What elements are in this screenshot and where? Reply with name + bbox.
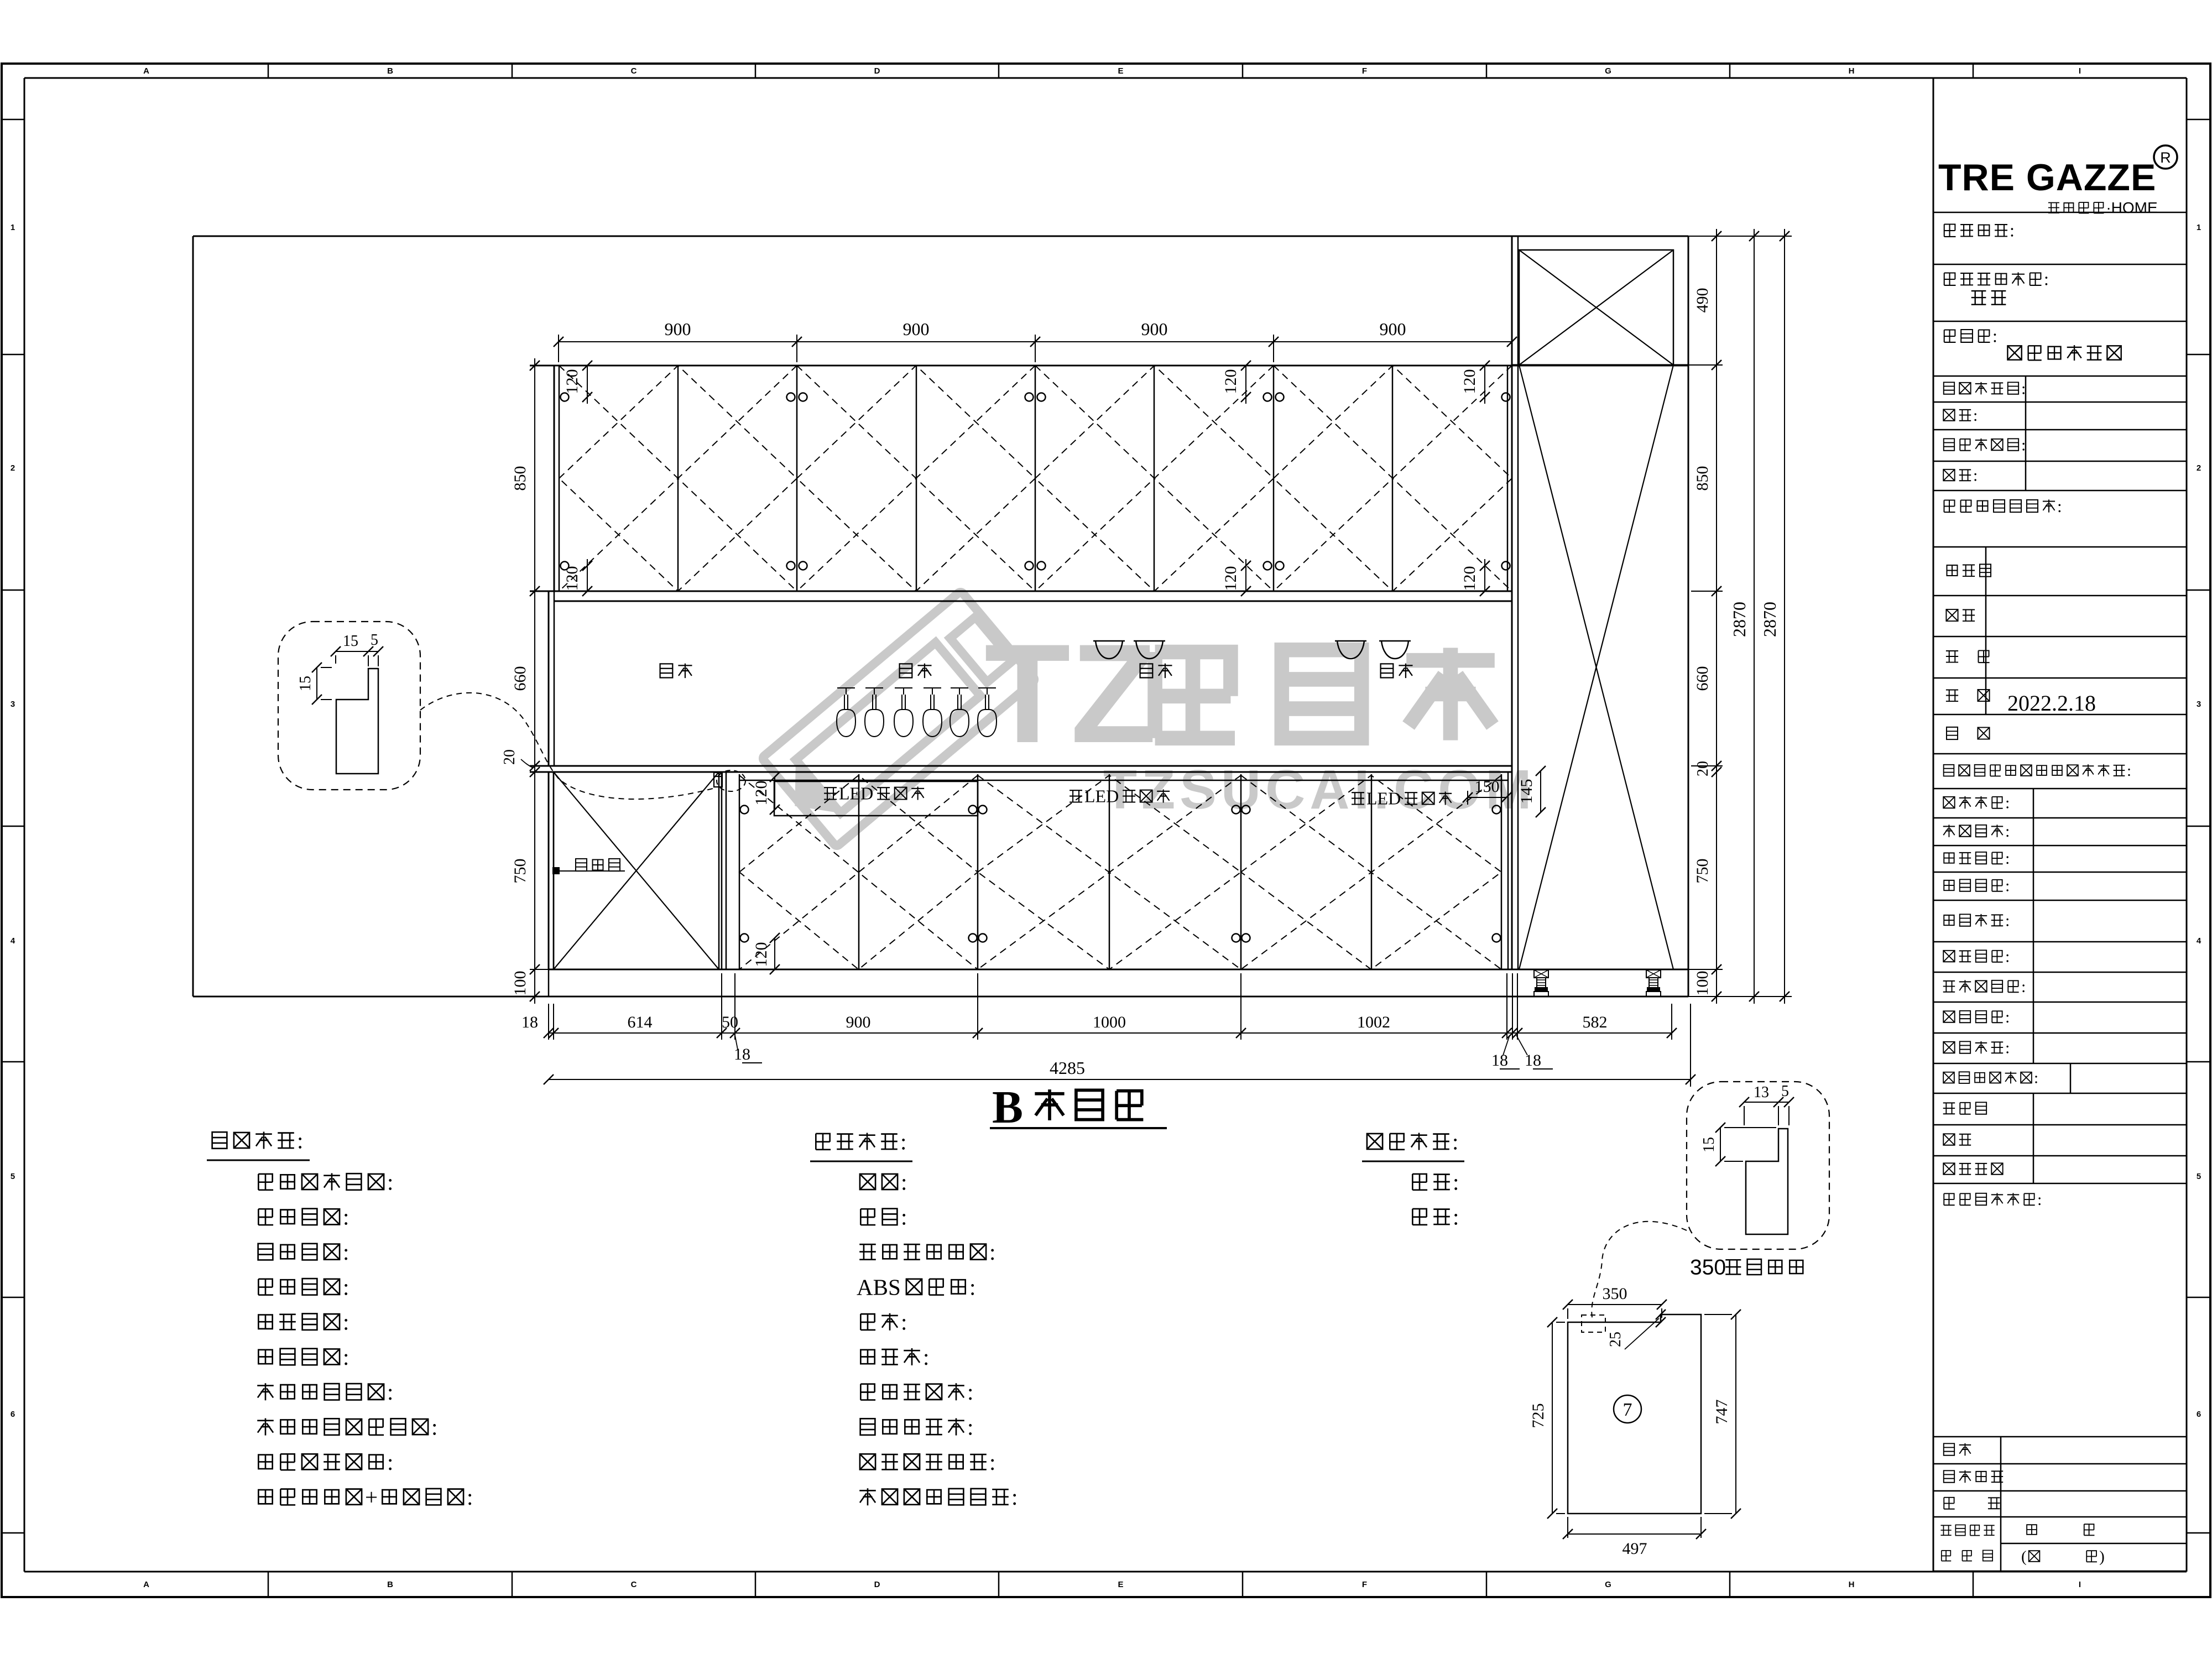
svg-text:7: 7 [1623,1400,1632,1420]
svg-text:4285: 4285 [1050,1058,1085,1078]
svg-text::: : [2005,1039,2010,1057]
svg-text:13: 13 [1754,1084,1769,1101]
svg-text:5: 5 [371,632,378,649]
svg-text:D: D [874,66,880,76]
svg-text:15: 15 [297,676,314,691]
svg-text:G: G [1605,1580,1611,1589]
svg-text:TZSUCAI.COM: TZSUCAI.COM [1103,759,1536,821]
svg-text:490: 490 [1693,288,1712,313]
svg-text:C: C [631,1580,637,1589]
svg-text::: : [343,1274,349,1300]
svg-text::: : [2005,947,2010,966]
svg-text:+: + [365,1484,378,1510]
svg-text:E: E [1118,1580,1123,1589]
svg-text:1: 1 [2197,223,2201,232]
svg-text:3: 3 [11,700,15,709]
svg-text:ABS: ABS [857,1274,901,1300]
svg-text:18: 18 [1491,1051,1508,1070]
svg-text:145: 145 [1517,779,1536,804]
svg-text:2870: 2870 [1760,602,1780,637]
svg-text::: : [2021,978,2026,996]
svg-text:900: 900 [903,319,930,339]
svg-text::: : [901,1169,907,1194]
svg-text:6: 6 [11,1410,15,1419]
svg-text:1000: 1000 [1093,1013,1126,1031]
svg-text:120: 120 [1222,566,1240,591]
svg-text::: : [1453,1169,1459,1194]
svg-text:F: F [1362,1580,1367,1589]
svg-text::: : [1011,1484,1018,1510]
svg-text:(: ( [2021,1548,2027,1566]
svg-text::: : [2127,762,2131,780]
svg-text:50: 50 [722,1013,738,1031]
svg-text::: : [989,1239,995,1265]
svg-text:I: I [2079,1580,2081,1589]
svg-text:120: 120 [563,566,581,591]
svg-text:A: A [143,66,149,76]
svg-text:25: 25 [1607,1332,1624,1347]
svg-text:15: 15 [1700,1137,1718,1152]
svg-text:5: 5 [1781,1083,1789,1100]
svg-text:C: C [631,66,637,76]
svg-text:2: 2 [11,463,15,473]
svg-text:120: 120 [1460,369,1479,394]
svg-text::: : [901,1310,907,1335]
svg-text::: : [967,1415,973,1440]
svg-text:B: B [992,1082,1023,1133]
svg-text:18: 18 [734,1045,750,1063]
svg-text:725: 725 [1529,1404,1547,1428]
svg-text:5: 5 [11,1172,15,1181]
svg-text::: : [969,1274,975,1300]
svg-text::: : [923,1344,929,1370]
svg-text:120: 120 [563,369,581,394]
svg-text:582: 582 [1583,1013,1608,1031]
svg-text:): ) [2099,1548,2105,1566]
svg-text:120: 120 [1460,566,1479,591]
svg-text:TZ: TZ [984,615,1157,773]
svg-text::: : [343,1239,349,1265]
svg-text:350: 350 [1603,1285,1627,1303]
svg-text::: : [387,1169,393,1194]
svg-text:E: E [1118,66,1123,76]
svg-text:1: 1 [11,223,15,232]
svg-text:120: 120 [752,942,770,967]
svg-text:G: G [1605,66,1611,76]
svg-text::: : [1973,406,1978,425]
svg-text:100: 100 [1693,971,1712,996]
svg-text:18: 18 [521,1013,538,1031]
svg-text::: : [343,1204,349,1230]
svg-text:747: 747 [1713,1400,1731,1425]
svg-text::: : [2044,269,2049,289]
svg-text::: : [297,1128,303,1153]
svg-text:TRE GAZZE: TRE GAZZE [1938,156,2156,199]
svg-text:·HOME: ·HOME [2106,199,2157,216]
svg-text:497: 497 [1623,1540,1647,1558]
svg-text:900: 900 [1380,319,1406,339]
svg-text::: : [2010,221,2015,241]
svg-text:D: D [874,1580,880,1589]
svg-text:750: 750 [1693,859,1712,884]
svg-text::: : [343,1310,349,1335]
svg-text:H: H [1849,66,1855,76]
svg-text:4: 4 [2197,936,2201,946]
svg-text:2: 2 [2197,463,2201,473]
svg-text:900: 900 [1141,319,1168,339]
svg-text:I: I [2079,66,2081,76]
svg-text:6: 6 [2197,1410,2201,1419]
svg-text::: : [967,1379,973,1405]
svg-text:900: 900 [846,1013,871,1031]
svg-text::: : [343,1344,349,1370]
svg-text:350: 350 [1690,1256,1726,1280]
svg-text:2022.2.18: 2022.2.18 [2007,691,2096,716]
svg-text::: : [2005,1008,2010,1026]
svg-text::: : [2057,497,2062,516]
svg-text::: : [1453,1204,1459,1229]
svg-text:150: 150 [1475,778,1500,796]
svg-text:120: 120 [752,781,770,806]
svg-text:614: 614 [628,1013,653,1031]
svg-text::: : [387,1449,393,1475]
svg-text:660: 660 [1693,666,1712,691]
svg-text:R: R [2160,149,2171,166]
svg-text:H: H [1849,1580,1855,1589]
svg-text::: : [2005,794,2010,812]
svg-text:1002: 1002 [1357,1013,1390,1031]
svg-text::: : [2005,849,2010,868]
svg-text:5: 5 [2197,1172,2201,1181]
svg-text:120: 120 [1222,369,1240,394]
svg-text:660: 660 [511,666,529,691]
svg-text:2870: 2870 [1729,602,1749,637]
svg-text:A: A [143,1580,149,1589]
svg-text::: : [901,1204,907,1230]
svg-text::: : [467,1484,473,1510]
svg-text:850: 850 [511,466,529,491]
svg-text:850: 850 [1693,466,1712,491]
svg-text::: : [431,1415,437,1440]
svg-text:4: 4 [11,936,15,946]
svg-text:900: 900 [665,319,691,339]
svg-text:15: 15 [343,633,358,650]
svg-text::: : [387,1379,393,1405]
svg-text:B: B [387,66,393,76]
svg-text:B: B [387,1580,393,1589]
svg-text:3: 3 [2197,700,2201,709]
svg-text:750: 750 [511,859,529,884]
svg-text::: : [2034,1070,2038,1087]
svg-text:20: 20 [1694,761,1712,776]
svg-text::: : [989,1449,995,1475]
svg-text:100: 100 [511,971,529,996]
svg-text:F: F [1362,66,1367,76]
svg-text::: : [900,1129,906,1154]
svg-text::: : [1452,1129,1458,1154]
svg-text::: : [1992,326,1997,346]
svg-text::: : [2005,822,2010,841]
svg-text::: : [2037,1191,2042,1209]
svg-text::: : [1973,466,1978,484]
svg-text::: : [2005,911,2010,930]
svg-text:20: 20 [501,749,518,765]
svg-text::: : [2005,877,2010,895]
